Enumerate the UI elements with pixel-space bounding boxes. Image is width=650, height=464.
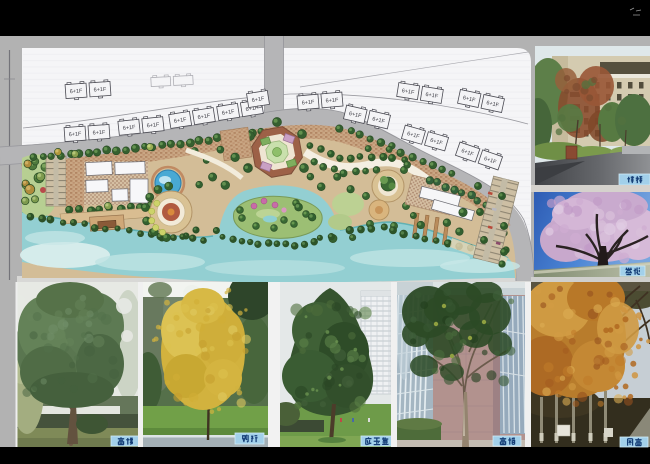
svg-text:6+1F: 6+1F [69,131,83,138]
svg-text:6+1F: 6+1F [92,130,106,137]
svg-text:6+1F: 6+1F [70,88,84,95]
svg-text:6+1F: 6+1F [93,87,107,94]
svg-text:6+1F: 6+1F [325,97,339,104]
svg-text:6+1F: 6+1F [302,99,316,106]
